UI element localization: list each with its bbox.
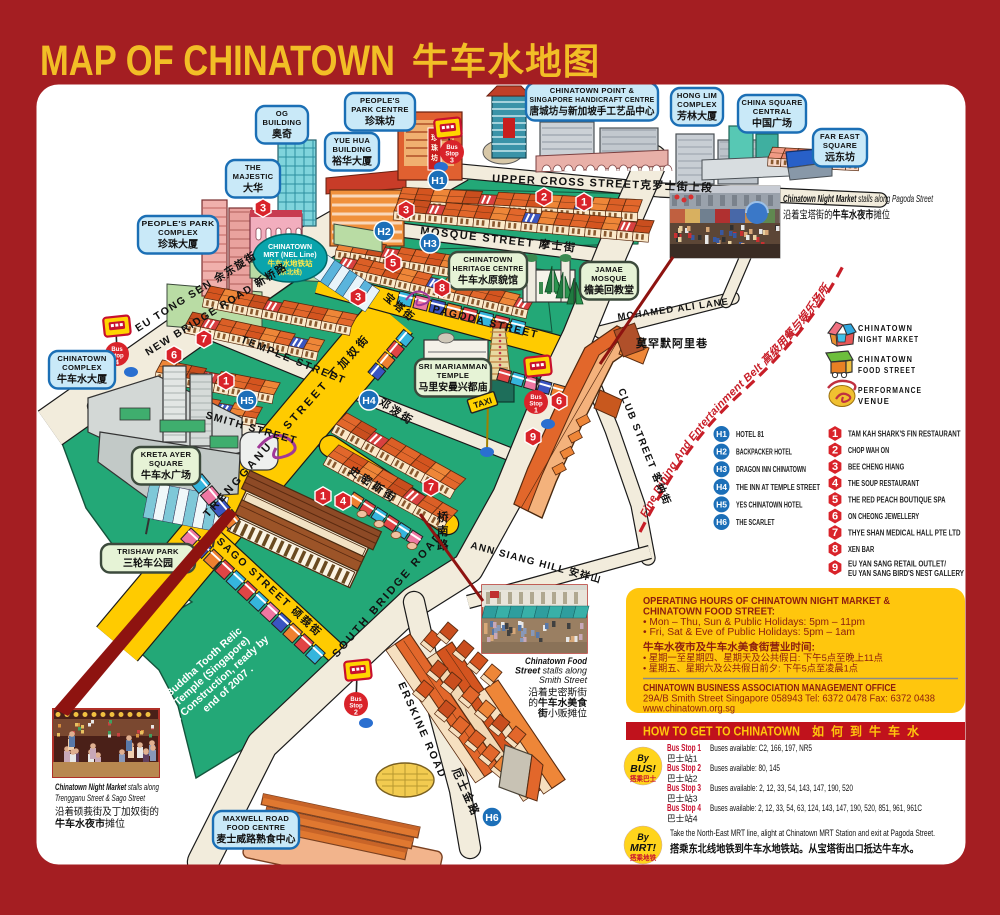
svg-text:CHINATOWN: CHINATOWN — [463, 255, 512, 264]
svg-text:莫罕默阿里巷: 莫罕默阿里巷 — [635, 336, 708, 350]
svg-text:搭乘地铁: 搭乘地铁 — [630, 853, 657, 862]
svg-text:HONG LIM: HONG LIM — [677, 91, 717, 100]
svg-text:www.chinatown.org.sg: www.chinatown.org.sg — [642, 704, 735, 715]
svg-text:H5: H5 — [240, 395, 254, 407]
svg-text:TEMPLE: TEMPLE — [437, 371, 470, 380]
svg-text:6: 6 — [556, 396, 562, 408]
svg-text:Bus Stop 1: Bus Stop 1 — [667, 743, 701, 754]
svg-text:MAXWELL ROAD: MAXWELL ROAD — [223, 814, 290, 823]
svg-text:6: 6 — [832, 511, 838, 523]
svg-text:By: By — [637, 753, 649, 763]
svg-text:沿着史密斯街: 沿着史密斯街 — [528, 686, 587, 699]
svg-text:Trengganu Street & Sago Street: Trengganu Street & Sago Street — [55, 793, 145, 803]
svg-text:大华: 大华 — [243, 182, 263, 195]
svg-text:ON CHEONG JEWELLERY: ON CHEONG JEWELLERY — [848, 511, 919, 521]
svg-text:PERFORMANCE: PERFORMANCE — [858, 386, 922, 395]
svg-text:牛车水夜市及牛车水美食街营业时间:: 牛车水夜市及牛车水美食街营业时间: — [643, 641, 815, 654]
svg-text:1: 1 — [832, 428, 838, 440]
svg-text:CHINATOWN BUSINESS ASSOCIATION: CHINATOWN BUSINESS ASSOCIATION MANAGEMEN… — [643, 683, 896, 694]
svg-text:H6: H6 — [485, 812, 499, 824]
svg-text:8: 8 — [439, 283, 445, 295]
svg-text:FOOD CENTRE: FOOD CENTRE — [227, 823, 286, 832]
svg-text:Bus Stop 4: Bus Stop 4 — [667, 803, 701, 814]
svg-text:奥奇: 奥奇 — [272, 128, 292, 141]
svg-text:Buses available: 2, 12, 33, 54: Buses available: 2, 12, 33, 54, 63, 124,… — [710, 803, 922, 814]
svg-text:5: 5 — [832, 494, 838, 506]
svg-text:THE RED PEACH BOUTIQUE SPA: THE RED PEACH BOUTIQUE SPA — [848, 495, 946, 505]
svg-text:珍珠坊: 珍珠坊 — [365, 115, 395, 128]
svg-text:7: 7 — [832, 527, 838, 539]
svg-text:MAJESTIC: MAJESTIC — [233, 172, 274, 181]
svg-text:4: 4 — [832, 478, 839, 490]
svg-text:H6: H6 — [716, 517, 727, 527]
svg-text:BEE CHENG HIANG: BEE CHENG HIANG — [848, 462, 904, 472]
svg-text:搭乘东北线地铁到牛车水地铁站。从宝塔街出口抵达牛车水。: 搭乘东北线地铁到牛车水地铁站。从宝塔街出口抵达牛车水。 — [670, 842, 919, 855]
svg-text:BUILDING: BUILDING — [262, 118, 301, 127]
svg-text:6: 6 — [171, 350, 177, 362]
svg-text:Bus: Bus — [111, 347, 123, 353]
svg-text:芳林大厦: 芳林大厦 — [677, 110, 718, 123]
svg-text:H1: H1 — [716, 429, 727, 439]
svg-text:8: 8 — [832, 544, 838, 556]
svg-text:OPERATING HOURS OF CHINATOWN N: OPERATING HOURS OF CHINATOWN NIGHT MARKE… — [643, 596, 891, 607]
svg-text:THE: THE — [245, 163, 261, 172]
svg-text:TRISHAW PARK: TRISHAW PARK — [117, 547, 179, 556]
svg-text:YUE HUA: YUE HUA — [334, 136, 370, 145]
svg-text:沿着宝塔街的牛车水夜市摊位: 沿着宝塔街的牛车水夜市摊位 — [783, 208, 890, 221]
svg-text:H4: H4 — [716, 482, 727, 492]
svg-text:MOSQUE: MOSQUE — [591, 274, 627, 283]
svg-text:KRETA AYER: KRETA AYER — [141, 450, 192, 459]
svg-text:NIGHT MARKET: NIGHT MARKET — [858, 335, 919, 344]
svg-text:SQUARE: SQUARE — [823, 141, 857, 150]
svg-text:COMPLEX: COMPLEX — [158, 228, 198, 237]
svg-text:牛车水地图: 牛车水地图 — [412, 41, 601, 82]
svg-text:H2: H2 — [377, 226, 391, 238]
svg-text:9: 9 — [832, 562, 838, 574]
svg-text:PEOPLE'S PARK: PEOPLE'S PARK — [142, 219, 215, 228]
svg-text:1: 1 — [581, 197, 587, 209]
svg-text:5: 5 — [390, 258, 396, 270]
svg-text:牛车水原貌馆: 牛车水原貌馆 — [458, 274, 518, 287]
svg-text:H3: H3 — [423, 238, 437, 250]
svg-text:EU YAN SANG BIRD'S NEST GALLER: EU YAN SANG BIRD'S NEST GALLERY — [848, 568, 964, 578]
svg-text:CHINATOWN: CHINATOWN — [858, 355, 913, 364]
svg-text:街小贩摊位: 街小贩摊位 — [537, 707, 587, 720]
svg-text:的牛车水美食: 的牛车水美食 — [528, 696, 587, 709]
svg-text:2: 2 — [541, 192, 547, 204]
svg-text:2: 2 — [354, 710, 358, 717]
svg-text:马里安曼兴都庙: 马里安曼兴都庙 — [419, 381, 488, 394]
svg-text:3: 3 — [260, 203, 266, 215]
svg-text:三轮车公园: 三轮车公园 — [123, 557, 173, 570]
svg-text:HERITAGE CENTRE: HERITAGE CENTRE — [453, 264, 524, 273]
svg-text:7: 7 — [428, 482, 434, 494]
svg-text:By: By — [637, 832, 649, 842]
svg-text:3: 3 — [355, 292, 361, 304]
svg-text:中国广场: 中国广场 — [752, 117, 792, 130]
svg-text:• Fri, Sat & Eve of Public Ho: • Fri, Sat & Eve of Public Holidays: 5pm… — [643, 627, 855, 638]
svg-text:9: 9 — [530, 432, 536, 444]
svg-text:巴士站2: 巴士站2 — [667, 773, 698, 784]
svg-text:CHOP WAH ON: CHOP WAH ON — [848, 445, 889, 455]
svg-text:THE INN AT TEMPLE STREET: THE INN AT TEMPLE STREET — [736, 482, 821, 492]
svg-text:Chinatown Night Market stalls: Chinatown Night Market stalls along — [55, 782, 159, 792]
svg-text:H5: H5 — [716, 499, 727, 509]
svg-text:YES CHINATOWN HOTEL: YES CHINATOWN HOTEL — [736, 499, 803, 509]
svg-text:麦士威路熟食中心: 麦士威路熟食中心 — [217, 833, 296, 846]
svg-text:HOW TO GET TO CHINATOWN: HOW TO GET TO CHINATOWN — [643, 725, 800, 739]
svg-text:MRT (NEL Line): MRT (NEL Line) — [263, 250, 317, 259]
svg-text:坊: 坊 — [431, 153, 438, 162]
svg-text:3: 3 — [403, 205, 409, 217]
svg-text:7: 7 — [201, 334, 207, 346]
svg-text:JAMAE: JAMAE — [595, 265, 623, 274]
svg-text:XEN BAR: XEN BAR — [848, 544, 875, 554]
svg-text:Buses available: C2, 166, 197,: Buses available: C2, 166, 197, NR5 — [710, 743, 812, 754]
svg-text:CENTRAL: CENTRAL — [753, 107, 791, 116]
svg-text:檐美回教堂: 檐美回教堂 — [584, 284, 634, 297]
svg-text:南: 南 — [437, 524, 449, 538]
svg-text:CHINATOWN: CHINATOWN — [858, 324, 913, 333]
svg-text:1: 1 — [534, 408, 538, 415]
svg-text:BACKPACKER HOTEL: BACKPACKER HOTEL — [736, 447, 792, 457]
svg-text:3: 3 — [832, 461, 838, 473]
svg-text:牛车水广场: 牛车水广场 — [141, 469, 191, 482]
svg-text:搭乘巴士: 搭乘巴士 — [630, 774, 657, 783]
svg-text:Bus: Bus — [350, 697, 362, 703]
svg-text:巴士站1: 巴士站1 — [667, 753, 698, 764]
svg-text:如何到牛车水: 如何到牛车水 — [812, 724, 926, 739]
svg-text:1: 1 — [223, 376, 229, 388]
svg-text:VENUE: VENUE — [858, 397, 890, 406]
svg-text:CHINATOWN FOOD STREET:: CHINATOWN FOOD STREET: — [643, 607, 775, 618]
svg-text:Bus Stop 2: Bus Stop 2 — [667, 763, 701, 774]
svg-text:2: 2 — [832, 445, 838, 457]
svg-text:裕华大厦: 裕华大厦 — [331, 155, 373, 168]
svg-text:MRT!: MRT! — [630, 842, 657, 854]
svg-text:PEOPLE'S: PEOPLE'S — [360, 96, 400, 105]
svg-text:桥: 桥 — [437, 510, 449, 524]
svg-text:H2: H2 — [716, 447, 727, 457]
svg-text:Take the North-East MRT line,: Take the North-East MRT line, alight at … — [670, 828, 935, 839]
svg-text:巴士站4: 巴士站4 — [667, 813, 698, 824]
svg-text:Bus: Bus — [530, 395, 542, 401]
svg-text:FAR EAST: FAR EAST — [820, 132, 860, 141]
svg-text:H4: H4 — [362, 395, 376, 407]
svg-text:TAM KAH SHARK'S FIN RESTAURANT: TAM KAH SHARK'S FIN RESTAURANT — [848, 429, 961, 439]
svg-text:BUILDING: BUILDING — [332, 145, 371, 154]
svg-text:HOTEL 81: HOTEL 81 — [736, 429, 764, 439]
svg-text:FOOD STREET: FOOD STREET — [858, 366, 916, 375]
svg-text:1: 1 — [320, 491, 326, 503]
svg-text:沿着硕莪街及丁加奴街的: 沿着硕莪街及丁加奴街的 — [55, 805, 159, 818]
svg-text:THYE SHAN MEDICAL HALL PTE LTD: THYE SHAN MEDICAL HALL PTE LTD — [848, 528, 961, 538]
svg-text:牛车水夜市摊位: 牛车水夜市摊位 — [55, 817, 125, 830]
svg-text:Bus: Bus — [446, 145, 458, 151]
svg-text:PARK CENTRE: PARK CENTRE — [351, 105, 409, 114]
svg-text:3: 3 — [450, 158, 454, 165]
svg-text:SRI MARIAMMAN: SRI MARIAMMAN — [419, 362, 488, 371]
svg-text:• 星期一至星期四、星期天及公共假日: 下午5点至晚上11: • 星期一至星期四、星期天及公共假日: 下午5点至晚上11点 — [643, 652, 883, 664]
svg-text:Buses available: 2, 12, 33, 54: Buses available: 2, 12, 33, 54, 143, 147… — [710, 783, 853, 794]
svg-text:THE SOUP RESTAURANT: THE SOUP RESTAURANT — [848, 478, 920, 488]
svg-text:牛车水大厦: 牛车水大厦 — [57, 373, 108, 386]
svg-text:EU YAN SANG RETAIL OUTLET/: EU YAN SANG RETAIL OUTLET/ — [848, 559, 946, 569]
svg-text:MAP OF CHINATOWN: MAP OF CHINATOWN — [40, 37, 395, 85]
svg-text:DRAGON INN CHINATOWN: DRAGON INN CHINATOWN — [736, 464, 806, 474]
svg-text:COMPLEX: COMPLEX — [62, 363, 102, 372]
svg-text:巴士站3: 巴士站3 — [667, 793, 698, 804]
svg-text:SQUARE: SQUARE — [149, 459, 183, 468]
svg-text:• 星期五、星期六及公共假日前夕: 下午5点至凌晨1点: • 星期五、星期六及公共假日前夕: 下午5点至凌晨1点 — [643, 663, 858, 675]
svg-text:Chinatown Night Market stalls: Chinatown Night Market stalls along Pago… — [783, 194, 934, 205]
svg-text:Bus Stop 3: Bus Stop 3 — [667, 783, 701, 794]
svg-text:H3: H3 — [716, 464, 727, 474]
svg-text:远东坊: 远东坊 — [825, 151, 855, 164]
svg-text:珠: 珠 — [431, 143, 439, 152]
svg-text:Smith Street: Smith Street — [539, 675, 587, 686]
svg-text:BUS!: BUS! — [630, 763, 656, 775]
svg-text:SINGAPORE HANDICRAFT CENTRE: SINGAPORE HANDICRAFT CENTRE — [530, 95, 655, 104]
svg-text:唐城坊与新加坡手工艺品中心: 唐城坊与新加坡手工艺品中心 — [530, 105, 655, 118]
svg-text:Buses available: 80, 145: Buses available: 80, 145 — [710, 763, 780, 774]
svg-text:CHINA SQUARE: CHINA SQUARE — [742, 98, 803, 107]
svg-text:OG: OG — [276, 109, 288, 118]
svg-text:CHINATOWN POINT &: CHINATOWN POINT & — [550, 86, 635, 95]
svg-text:THE SCARLET: THE SCARLET — [736, 517, 775, 527]
svg-text:珍珠大厦: 珍珠大厦 — [158, 238, 199, 251]
svg-text:4: 4 — [340, 496, 347, 508]
svg-text:CHINATOWN: CHINATOWN — [57, 354, 106, 363]
svg-text:H1: H1 — [431, 175, 445, 187]
svg-text:COMPLEX: COMPLEX — [677, 100, 717, 109]
